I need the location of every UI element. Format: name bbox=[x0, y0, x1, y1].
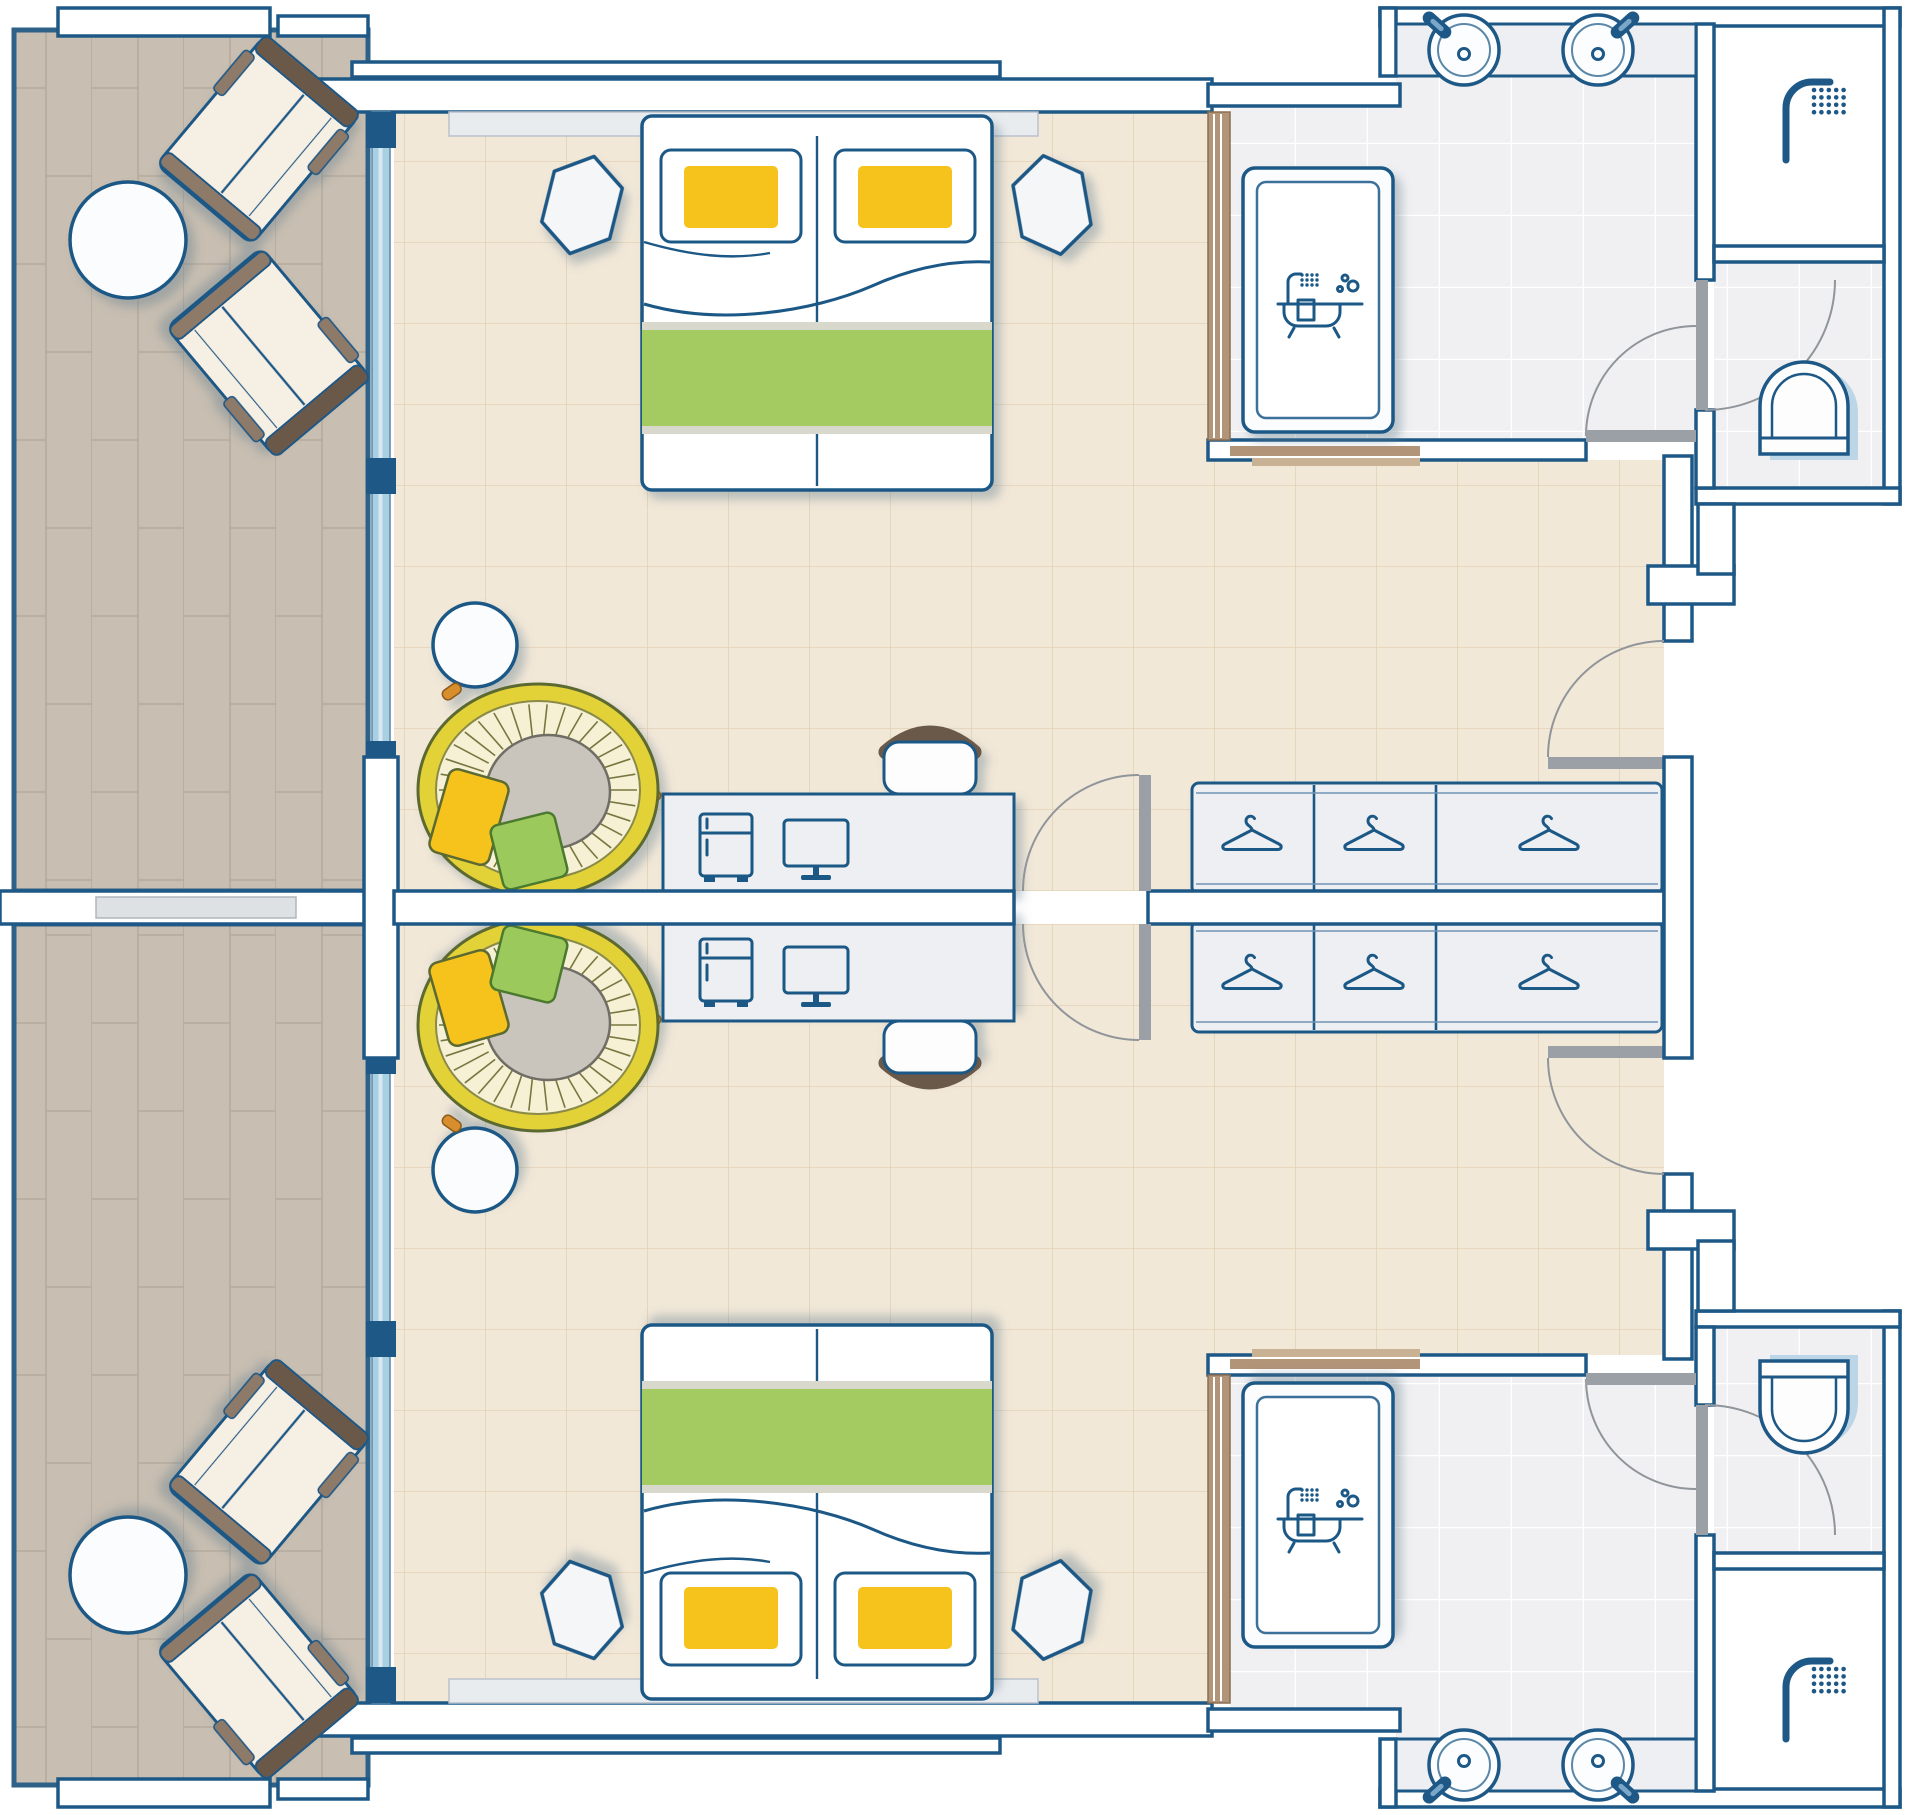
north-wall bbox=[310, 1703, 1212, 1736]
door-leaf bbox=[1696, 280, 1708, 410]
entry-wall-upper bbox=[1664, 456, 1692, 641]
pillow-inner bbox=[684, 166, 778, 228]
balcony-round-table bbox=[70, 1517, 186, 1633]
bathroom-north-wall bbox=[1208, 1709, 1400, 1731]
window-post bbox=[366, 1667, 396, 1703]
bathroom-b-floor-vanity-strip bbox=[1396, 1709, 1696, 1739]
bed-runner bbox=[642, 1389, 992, 1485]
side-table-b bbox=[433, 1128, 517, 1212]
east-outer-wall bbox=[1884, 1311, 1900, 1807]
door-leaf bbox=[1586, 1373, 1696, 1385]
threshold-track bbox=[1230, 446, 1420, 456]
guest-room-b bbox=[14, 919, 1900, 1807]
bathtub-a bbox=[1243, 168, 1393, 432]
wardrobe-b bbox=[1192, 921, 1662, 1032]
window-glass-highlight bbox=[379, 1062, 383, 1699]
window-post bbox=[366, 741, 396, 757]
work-desk-a bbox=[663, 794, 1014, 891]
chair-seat bbox=[884, 1021, 976, 1073]
wing-south-wall bbox=[1696, 1311, 1900, 1327]
window-post bbox=[366, 112, 396, 148]
bathroom-east-wall-upper bbox=[1696, 24, 1714, 280]
entry-wall-pillar bbox=[1664, 757, 1692, 1058]
door-leaf bbox=[1696, 1405, 1708, 1535]
papasan-pillow-green bbox=[489, 924, 569, 1004]
double-bed-b bbox=[642, 1325, 992, 1699]
door-leaf bbox=[1586, 430, 1696, 442]
corridor-stub bbox=[1698, 1241, 1734, 1311]
bathroom-a-floor-vanity-strip bbox=[1396, 76, 1696, 106]
door-leaf bbox=[1139, 924, 1151, 1040]
pillow-inner bbox=[684, 1587, 778, 1649]
north-wall-outer-band bbox=[352, 62, 1000, 77]
threshold-track bbox=[1252, 1349, 1420, 1357]
guest-room-a bbox=[14, 8, 1900, 896]
window-post bbox=[366, 458, 396, 494]
runner-edge bbox=[642, 1381, 992, 1389]
chair-seat bbox=[884, 742, 976, 794]
shower-room-a-floor bbox=[1714, 24, 1884, 246]
runner-edge bbox=[642, 322, 992, 330]
east-outer-wall bbox=[1884, 8, 1900, 504]
balcony-parapet-panel bbox=[278, 1779, 368, 1799]
runner-edge bbox=[642, 426, 992, 434]
north-wall-outer-band bbox=[352, 1738, 1000, 1753]
work-desk-b bbox=[663, 924, 1014, 1021]
shower-room-b-floor bbox=[1714, 1569, 1884, 1791]
window-glass-highlight bbox=[379, 116, 383, 753]
bathroom-east-wall-lower bbox=[1696, 410, 1714, 488]
balcony-parapet-panel bbox=[278, 16, 368, 36]
runner-edge bbox=[642, 1485, 992, 1493]
shower-wc-divider-wall bbox=[1714, 246, 1884, 262]
window-post bbox=[366, 1058, 396, 1074]
vanity-nook-left-wall bbox=[1380, 1739, 1396, 1807]
balcony-round-table bbox=[70, 182, 186, 298]
balcony-divider bbox=[0, 891, 368, 924]
floor-plan: Hotel connecting guest rooms - top-view … bbox=[0, 0, 1920, 1815]
north-wall bbox=[310, 79, 1212, 112]
desk-chair-a bbox=[884, 733, 976, 794]
balcony-parapet-panel bbox=[58, 1779, 270, 1807]
shower-wc-divider-wall bbox=[1714, 1553, 1884, 1569]
pillow bbox=[835, 1573, 975, 1665]
door-leaf bbox=[1548, 1046, 1664, 1058]
bathroom-north-wall bbox=[1208, 84, 1400, 106]
pillow bbox=[835, 150, 975, 242]
side-table-a bbox=[433, 603, 517, 687]
party-wall bbox=[394, 891, 1664, 924]
pillow-inner bbox=[858, 1587, 952, 1649]
wardrobe-a bbox=[1192, 783, 1662, 894]
wing-south-wall bbox=[1696, 488, 1900, 504]
pillow bbox=[661, 150, 801, 242]
balcony-parapet-panel bbox=[58, 8, 270, 36]
pillow bbox=[661, 1573, 801, 1665]
corridor-stub bbox=[1698, 504, 1734, 574]
door-leaf bbox=[1139, 775, 1151, 891]
bed-runner bbox=[642, 330, 992, 426]
desk-chair-b bbox=[884, 1021, 976, 1082]
double-bed-a bbox=[642, 116, 992, 490]
window-post bbox=[366, 1321, 396, 1357]
papasan-pillow-green bbox=[489, 811, 569, 891]
bathtub-b bbox=[1243, 1383, 1393, 1647]
threshold-track bbox=[1252, 458, 1420, 466]
vanity-nook-left-wall bbox=[1380, 8, 1396, 76]
bathroom-east-wall-lower bbox=[1696, 1327, 1714, 1405]
door-leaf bbox=[1548, 757, 1664, 769]
pillow-inner bbox=[858, 166, 952, 228]
bathroom-east-wall-upper bbox=[1696, 1535, 1714, 1791]
threshold-track bbox=[1230, 1359, 1420, 1369]
entry-wall-upper bbox=[1664, 1174, 1692, 1359]
